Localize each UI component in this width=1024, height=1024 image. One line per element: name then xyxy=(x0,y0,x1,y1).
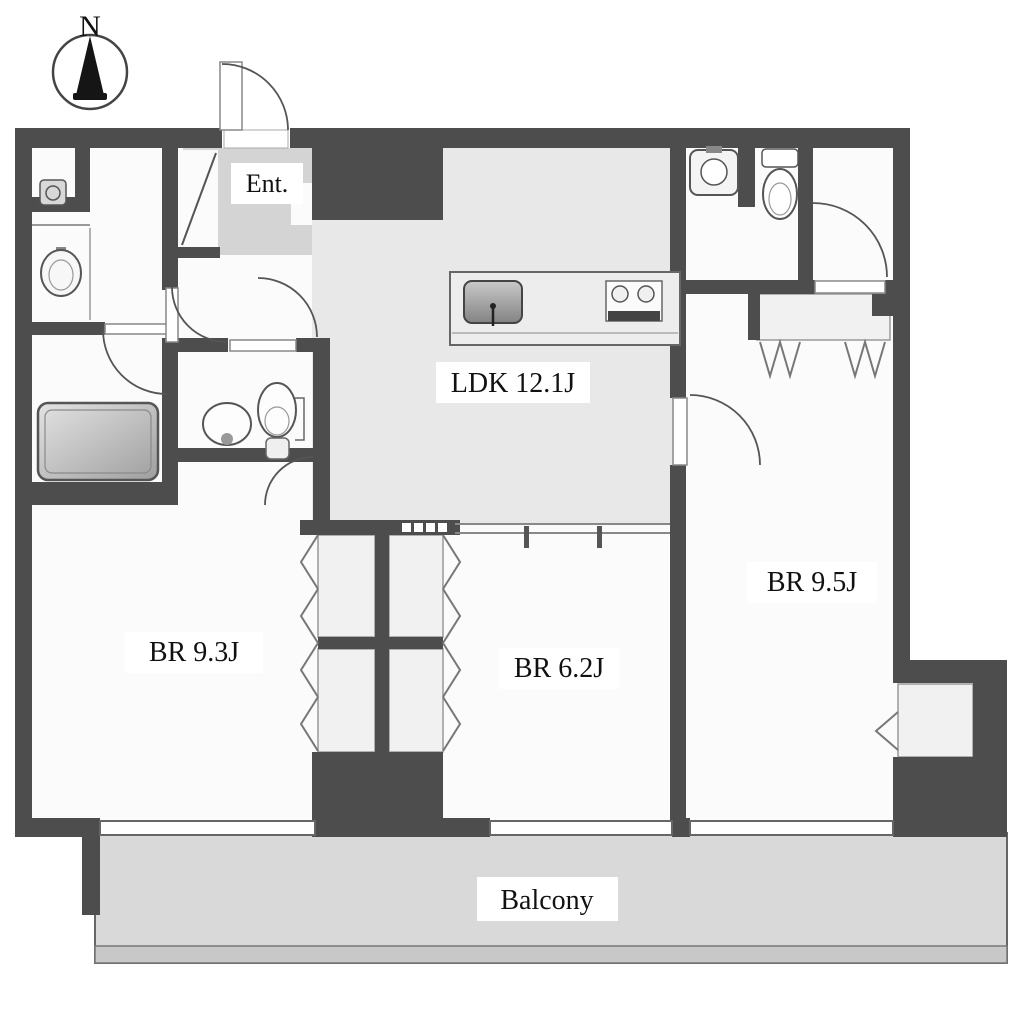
wall-bottom-mid xyxy=(443,818,490,837)
outer-wall-right xyxy=(893,148,910,683)
wall-closet-br3-left xyxy=(748,294,760,340)
ensuite-door-leaf xyxy=(815,281,885,293)
kitchen-sink xyxy=(464,281,522,326)
north-arrow-base xyxy=(73,93,107,100)
wall-bath-top xyxy=(32,322,105,335)
closet-br1-lower xyxy=(318,649,375,752)
floor-plan: N Ent. LDK 12.1J BR 9.3J BR 6.2J BR 9.5J… xyxy=(0,0,1024,1024)
toilet-ensuite xyxy=(762,149,798,219)
closet-br2-lower xyxy=(389,649,443,752)
bedroom3-label: BR 9.5J xyxy=(767,567,857,598)
track-tick-1 xyxy=(402,523,411,532)
bedroom1-label: BR 9.3J xyxy=(149,637,239,668)
hall-floor xyxy=(312,220,443,525)
wall-ensuite-bottom-a xyxy=(686,280,815,294)
window-br3 xyxy=(690,821,893,835)
gas-stove xyxy=(606,281,662,321)
wall-ldk-right-b xyxy=(670,465,686,823)
floors xyxy=(32,148,1007,963)
wall-shoe-closet-bottom xyxy=(178,247,220,258)
wc-door-leaf xyxy=(230,340,296,351)
closet-br1-upper xyxy=(318,535,375,637)
wall-wc-right-lower xyxy=(313,462,330,520)
wall-closet-top xyxy=(300,520,460,535)
balcony-edge xyxy=(95,946,1007,963)
closet-br3-side xyxy=(898,684,973,757)
compass: N xyxy=(53,10,127,109)
wall-br3-closet-top xyxy=(893,660,1007,683)
sliding-door-hanger-2 xyxy=(597,526,602,548)
balcony-left-wall xyxy=(82,823,100,915)
window-br2 xyxy=(490,821,672,835)
sliding-door-hanger-1 xyxy=(524,526,529,548)
track-tick-3 xyxy=(426,523,435,532)
wall-bottom-right-mass xyxy=(893,757,1007,837)
track-tick-4 xyxy=(438,523,447,532)
balcony-label: Balcony xyxy=(500,885,593,916)
entrance-label: Ent. xyxy=(246,169,289,198)
wall-closet-br3-notch xyxy=(872,294,893,316)
wall-ensuite-bottom-b xyxy=(885,280,910,294)
closet-br2-upper xyxy=(389,535,443,637)
outer-wall-top-left xyxy=(15,128,222,148)
wall-ensuite-stub xyxy=(738,148,755,207)
washbasin-wc xyxy=(203,403,251,445)
north-label: N xyxy=(79,10,101,43)
wall-br3-closet-right xyxy=(973,683,1007,757)
entrance-threshold xyxy=(224,130,288,148)
wall-ensuite-vertical xyxy=(798,148,813,280)
window-br1 xyxy=(100,821,315,835)
ldk-label: LDK 12.1J xyxy=(451,368,576,399)
bathroom-door-leaf xyxy=(105,324,167,334)
wall-closet-divider xyxy=(318,637,443,649)
wall-bath-bottom xyxy=(15,482,178,505)
bedroom3-door-leaf xyxy=(673,398,687,465)
bathtub xyxy=(38,403,158,480)
wall-center-pillar xyxy=(312,752,443,837)
track-tick-2 xyxy=(414,523,423,532)
wall-wc-bottom xyxy=(162,448,330,462)
corner-sink xyxy=(40,180,66,205)
wall-wc-top-b xyxy=(296,338,330,352)
closet-br3-top xyxy=(757,294,890,340)
wall-washroom-right-a xyxy=(162,148,178,290)
bedroom2-label: BR 6.2J xyxy=(514,653,604,684)
wall-wc-right xyxy=(313,352,330,448)
entrance-door-leaf xyxy=(220,62,242,130)
wall-entry-block xyxy=(312,133,443,220)
washbasin-ensuite xyxy=(690,146,738,195)
floor-plan-svg: N Ent. LDK 12.1J BR 9.3J BR 6.2J BR 9.5J… xyxy=(0,0,1024,1024)
